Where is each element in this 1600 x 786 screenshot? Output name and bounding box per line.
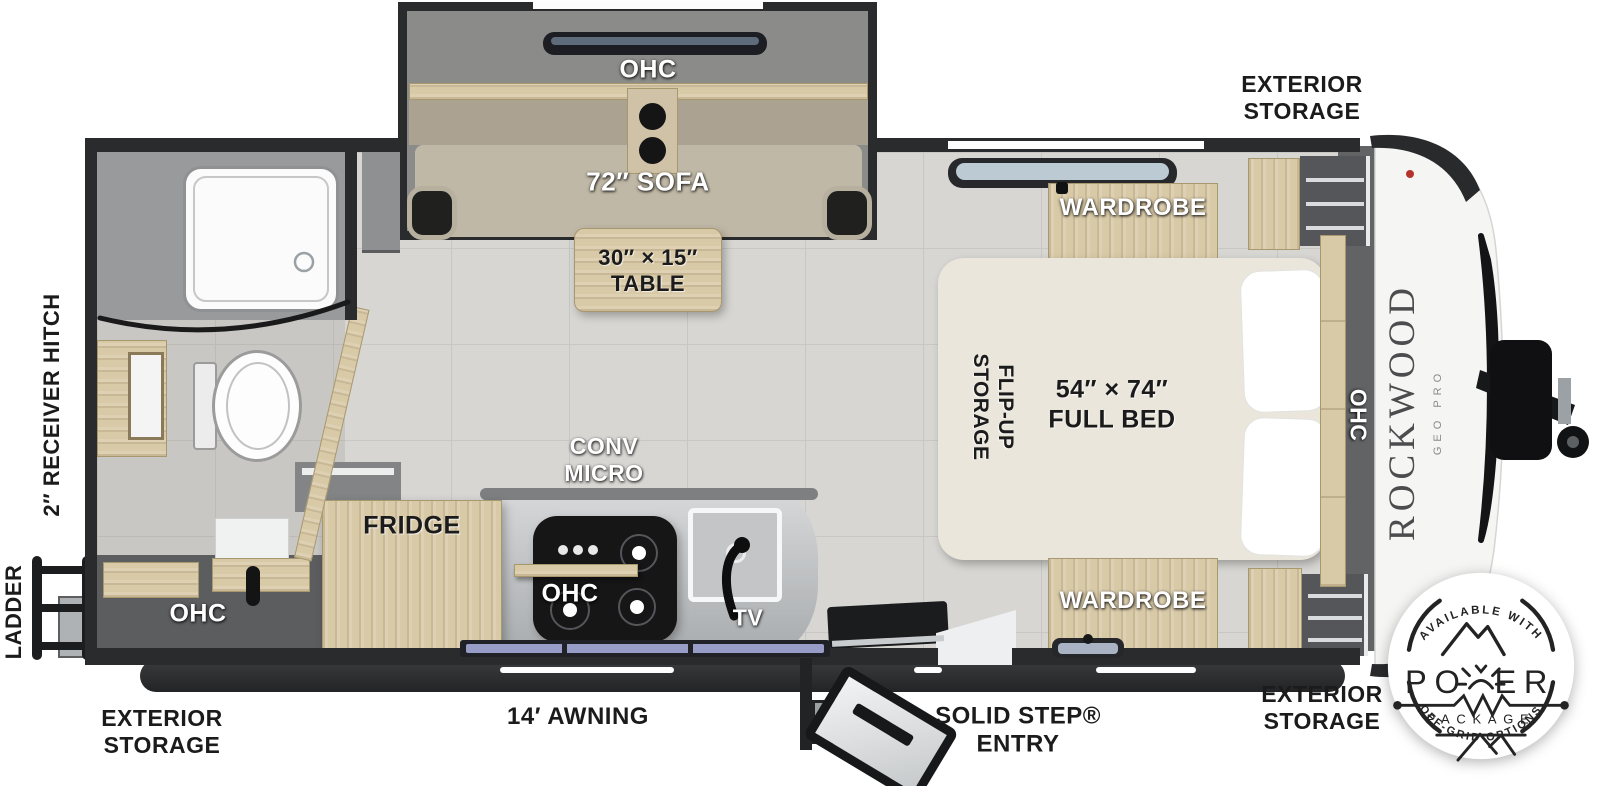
kitchen-ohc-label: OHC — [541, 579, 598, 609]
badge-package-text: PACKAGE — [1427, 712, 1536, 727]
awning-label: 14′ AWNING — [507, 703, 649, 731]
corner-cabinet-bottom — [1248, 568, 1302, 656]
flip-up-storage-label: FLIP-UPSTORAGE — [967, 354, 1017, 461]
exterior-storage-bottom-left-label: EXTERIORSTORAGE — [101, 705, 223, 759]
tv-label: TV — [733, 604, 763, 631]
window-mullion — [688, 641, 693, 656]
power-package-badge: AVAILABLE WITH OFF-GRID OPTIONS PO ER PA… — [1385, 570, 1577, 762]
stove-burner-center — [630, 600, 644, 614]
slideout-roof-vent-glass — [551, 37, 759, 45]
wall-top-left — [85, 138, 407, 152]
wardrobe-top-label: WARDROBE — [1060, 194, 1207, 222]
jack-wheel-hub — [1567, 436, 1579, 448]
kitchen-ohc-shelf — [514, 564, 638, 577]
brand-model: GEO PRO — [1432, 369, 1444, 455]
bathroom-ohc-label: OHC — [169, 599, 226, 629]
range-knob — [558, 545, 568, 555]
marker-light — [1406, 170, 1414, 178]
wardrobe-bottom-label: WARDROBE — [1060, 587, 1207, 615]
floorplan-canvas: OHC 72″ SOFA 30″ × 15″TABLE OHC FRIDGE O… — [0, 0, 1600, 786]
sink-drain — [726, 543, 746, 563]
badge-power-right: ER — [1494, 663, 1555, 700]
bathroom-partition-wall — [345, 138, 357, 320]
bed-size-label: 54″ × 74″FULL BED — [1048, 376, 1175, 435]
brand-name: ROCKWOOD — [1382, 283, 1423, 541]
counter-backsplash — [480, 488, 818, 500]
propane-cover — [1490, 340, 1552, 460]
entry-steps-slot — [851, 703, 914, 747]
kitchen-bottom-window-glass — [466, 644, 824, 653]
badge-power-left: PO — [1405, 663, 1468, 700]
exterior-storage-bottom-right-label: EXTERIORSTORAGE — [1261, 681, 1383, 735]
slideout-ohc-label: OHC — [619, 55, 676, 85]
bathroom-counter-shelf — [212, 558, 310, 592]
awning-highlight — [500, 667, 674, 673]
slideout-window — [533, 2, 763, 9]
cabinet-by-slide — [362, 152, 400, 253]
sofa-cupholder — [639, 103, 666, 130]
table-label: 30″ × 15″TABLE — [598, 245, 698, 297]
window-mullion — [562, 641, 567, 656]
range-knob — [573, 545, 583, 555]
tongue-jack-stem — [1558, 378, 1571, 424]
receiver-hitch-label: 2″ RECEIVER HITCH — [39, 293, 65, 516]
bedroom-ohc-label: OHC — [1344, 389, 1371, 442]
bedroom-top-window — [948, 141, 1204, 149]
skylight-crank — [1056, 182, 1068, 194]
exterior-storage-top-right-label: EXTERIORSTORAGE — [1241, 71, 1363, 125]
sofa-label: 72″ SOFA — [586, 167, 709, 198]
bathroom-counter-shelf — [103, 562, 199, 598]
conv-micro-label: CONVMICRO — [564, 433, 643, 487]
sofa-armrest-left — [407, 186, 457, 240]
stove-burner-center — [632, 546, 646, 560]
rear-ladder-rung — [34, 604, 90, 612]
bathtub-inner-rim — [193, 176, 329, 302]
bathroom-faucet — [246, 566, 260, 606]
rear-ladder-rung — [34, 642, 90, 650]
vanity-mirror — [128, 352, 164, 440]
ladder-label: LADDER — [1, 565, 27, 660]
bed-pillow — [1240, 269, 1329, 414]
awning-highlight — [1096, 667, 1196, 673]
window-crank-knob — [1083, 634, 1093, 644]
corner-cabinet-top — [1248, 158, 1300, 250]
toilet-seat — [226, 362, 290, 450]
wall-rear-left — [85, 138, 97, 665]
bedroom-skylight-glass — [956, 163, 1169, 180]
bedroom-bottom-window-glass — [1058, 643, 1118, 654]
range-knob — [588, 545, 598, 555]
solid-step-entry-label: SOLID STEP®ENTRY — [935, 703, 1101, 760]
bed-pillow — [1240, 417, 1329, 558]
awning-highlight — [914, 667, 942, 673]
sofa-armrest-right — [822, 186, 872, 240]
sofa-cupholder — [639, 137, 666, 164]
rear-ladder-rung — [34, 566, 90, 574]
fridge-label: FRIDGE — [363, 511, 460, 541]
